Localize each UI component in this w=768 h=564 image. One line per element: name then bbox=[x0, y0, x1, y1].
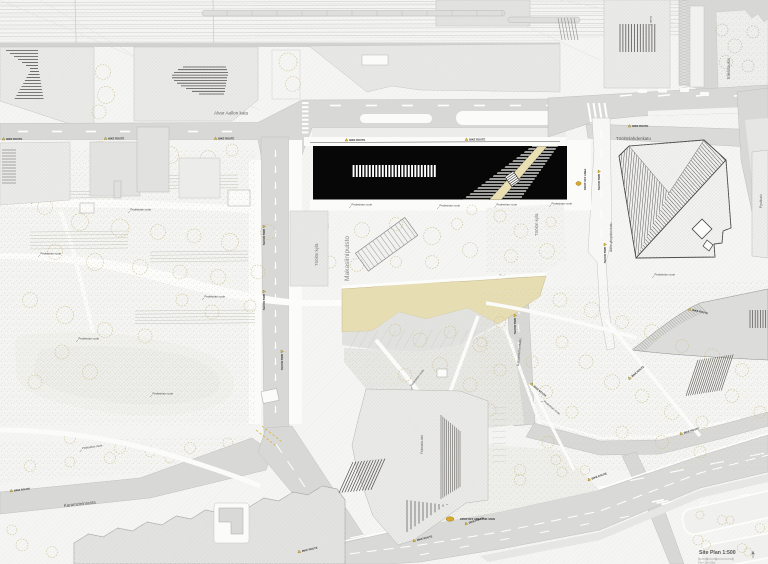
svg-text:Finlandia-talo: Finlandia-talo bbox=[420, 435, 424, 454]
svg-text:Hotel L: Hotel L bbox=[649, 16, 653, 26]
svg-text:Alvar Aallon katu: Alvar Aallon katu bbox=[214, 111, 249, 116]
svg-text:Pedestrian route: Pedestrian route bbox=[655, 273, 676, 277]
svg-text:Töölön kylä: Töölön kylä bbox=[534, 213, 539, 236]
svg-text:Pedestrian route: Pedestrian route bbox=[352, 203, 373, 207]
svg-text:BIKE ROUTE: BIKE ROUTE bbox=[108, 137, 124, 141]
svg-text:BIKE ROUTE: BIKE ROUTE bbox=[632, 124, 648, 128]
svg-text:BIKE ROUTE: BIKE ROUTE bbox=[262, 294, 266, 310]
svg-text:BIKE ROUTE: BIKE ROUTE bbox=[6, 137, 22, 141]
svg-text:Elielinaukio: Elielinaukio bbox=[726, 57, 731, 79]
svg-text:0 5m 10m 20m: 0 5m 10m 20m bbox=[698, 561, 715, 564]
svg-text:Makasiinipuisto: Makasiinipuisto bbox=[344, 236, 351, 281]
svg-text:BIKE ROUTE: BIKE ROUTE bbox=[349, 138, 365, 142]
svg-text:Pedestrian route: Pedestrian route bbox=[153, 392, 174, 396]
svg-text:BIKE ROUTE: BIKE ROUTE bbox=[280, 354, 284, 370]
svg-text:Pedestrian route: Pedestrian route bbox=[41, 252, 62, 256]
svg-text:BIKE ROUTE: BIKE ROUTE bbox=[218, 137, 234, 141]
svg-text:Site Plan 1:500: Site Plan 1:500 bbox=[699, 550, 736, 556]
svg-text:Töölönlahdenkatu: Töölönlahdenkatu bbox=[616, 136, 651, 141]
svg-text:BIKE ROUTE: BIKE ROUTE bbox=[469, 138, 485, 142]
svg-text:DROP OFF AREA: DROP OFF AREA bbox=[583, 169, 587, 190]
svg-text:Pedestrian route: Pedestrian route bbox=[131, 208, 152, 212]
svg-text:BIKE ROUTE: BIKE ROUTE bbox=[513, 318, 517, 334]
svg-text:Pedestrian route: Pedestrian route bbox=[497, 203, 518, 207]
svg-text:BIKE ROUTE: BIKE ROUTE bbox=[603, 247, 607, 263]
svg-text:Pedestrian route: Pedestrian route bbox=[205, 295, 226, 299]
svg-text:Pedestrian route: Pedestrian route bbox=[79, 337, 100, 341]
svg-text:Pedestrian route: Pedestrian route bbox=[440, 204, 461, 208]
svg-text:BIKE ROUTE: BIKE ROUTE bbox=[597, 174, 601, 190]
svg-text:Aalto-yliopistonkatu: Aalto-yliopistonkatu bbox=[609, 222, 613, 252]
svg-text:Pysäkatu: Pysäkatu bbox=[759, 194, 763, 208]
svg-text:BIKE ROUTE: BIKE ROUTE bbox=[262, 229, 266, 245]
svg-text:Töölön kylä: Töölön kylä bbox=[314, 243, 319, 266]
svg-text:Pedestrian route: Pedestrian route bbox=[552, 202, 573, 206]
